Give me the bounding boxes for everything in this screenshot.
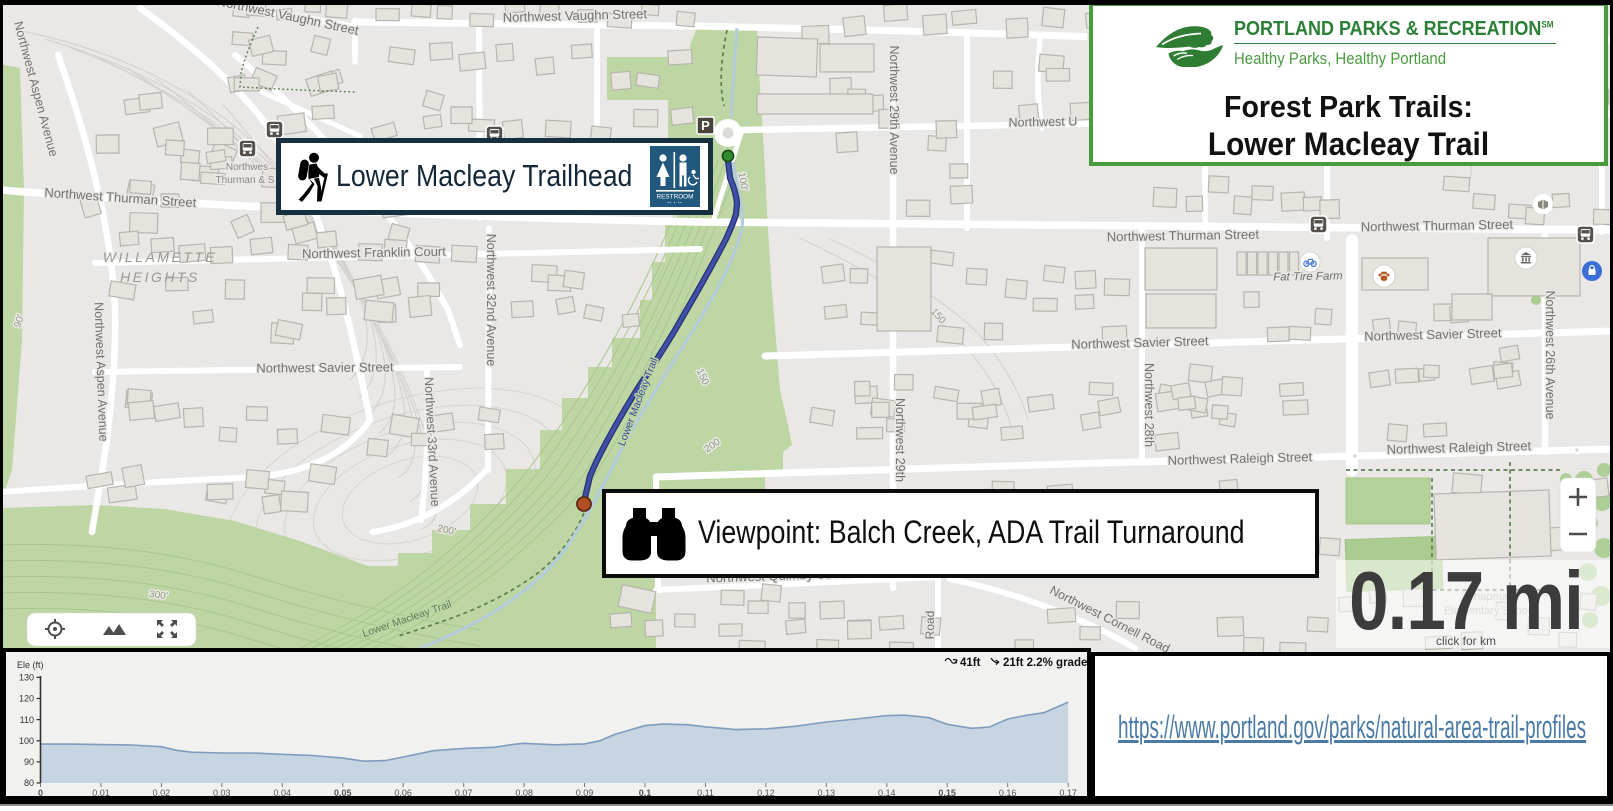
- svg-text:0.15: 0.15: [938, 788, 956, 796]
- svg-text:Ele (ft): Ele (ft): [17, 660, 44, 670]
- svg-text:80: 80: [24, 778, 34, 788]
- svg-text:0.06: 0.06: [394, 788, 412, 796]
- svg-text:Northwest 32nd Avenue: Northwest 32nd Avenue: [484, 234, 498, 367]
- svg-text:Northwest Thurman Street: Northwest Thurman Street: [1107, 227, 1260, 245]
- svg-text:0.12: 0.12: [757, 788, 775, 796]
- svg-text:Northwest 29th: Northwest 29th: [893, 398, 907, 482]
- svg-text:Road: Road: [923, 611, 937, 640]
- svg-text:P: P: [701, 118, 710, 133]
- svg-text:0.11: 0.11: [697, 788, 714, 796]
- svg-text:0.17: 0.17: [1059, 788, 1077, 796]
- svg-text:110: 110: [20, 715, 34, 725]
- svg-text:Northwest 28th: Northwest 28th: [1142, 363, 1156, 447]
- svg-text:Northwest Thurman Street: Northwest Thurman Street: [1361, 217, 1514, 235]
- svg-text:0.04: 0.04: [274, 788, 292, 796]
- svg-text:•• • ••: •• • ••: [667, 201, 682, 205]
- svg-text:0.1: 0.1: [639, 788, 652, 796]
- svg-text:Northwest 26th Avenue: Northwest 26th Avenue: [1543, 290, 1557, 419]
- svg-text:Thurman & S: Thurman & S: [216, 175, 275, 186]
- svg-text:click for km: click for km: [1436, 634, 1496, 648]
- svg-text:21ft 2.2% grade: 21ft 2.2% grade: [1003, 657, 1087, 669]
- svg-text:0: 0: [38, 788, 43, 796]
- svg-text:0.07: 0.07: [455, 788, 473, 796]
- svg-text:WILLAMETTE: WILLAMETTE: [103, 249, 217, 265]
- svg-text:0.03: 0.03: [213, 788, 231, 796]
- svg-text:0.05: 0.05: [334, 788, 352, 796]
- svg-text:Northwest U: Northwest U: [1008, 114, 1077, 129]
- svg-text:0.16: 0.16: [999, 788, 1017, 796]
- svg-text:Northwest 29th Avenue: Northwest 29th Avenue: [887, 45, 901, 174]
- svg-text:0.01: 0.01: [92, 788, 110, 796]
- svg-text:RESTROOM: RESTROOM: [657, 194, 694, 201]
- svg-text:0.02: 0.02: [153, 788, 171, 796]
- svg-text:100: 100: [19, 736, 34, 746]
- svg-text:Northwest Savier Street: Northwest Savier Street: [256, 359, 394, 375]
- svg-text:HEIGHTS: HEIGHTS: [120, 269, 200, 285]
- svg-text:Northwes: Northwes: [226, 162, 268, 173]
- svg-text:0.14: 0.14: [878, 788, 896, 796]
- svg-text:0.09: 0.09: [576, 788, 594, 796]
- svg-text:130: 130: [19, 673, 34, 683]
- svg-text:0.08: 0.08: [515, 788, 533, 796]
- svg-text:Fat Tire Farm: Fat Tire Farm: [1273, 270, 1343, 283]
- svg-text:0.13: 0.13: [818, 788, 836, 796]
- svg-text:41ft: 41ft: [960, 657, 981, 669]
- svg-text:90: 90: [24, 757, 34, 767]
- svg-text:120: 120: [19, 694, 34, 704]
- svg-text:Northwest Franklin Court: Northwest Franklin Court: [302, 244, 446, 262]
